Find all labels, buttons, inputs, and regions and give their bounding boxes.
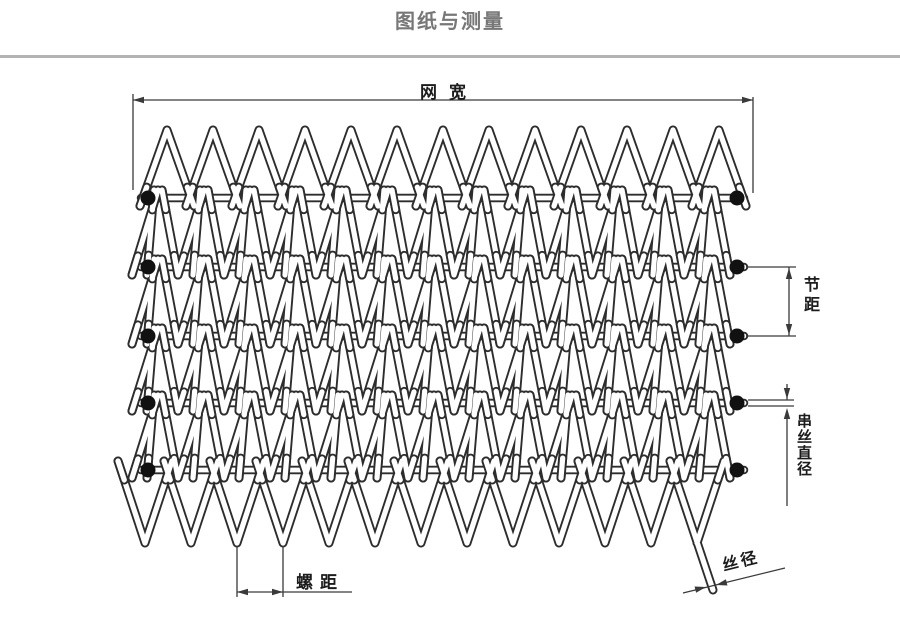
- label-spiral-pitch: 螺距: [296, 568, 344, 593]
- page: 图纸与测量 网宽 节距 串丝直径 螺距 丝径: [0, 0, 900, 628]
- label-net-width: 网宽: [388, 78, 498, 103]
- label-cross-wire-diameter: 串丝直径: [793, 413, 814, 477]
- label-pitch: 节距: [797, 276, 821, 316]
